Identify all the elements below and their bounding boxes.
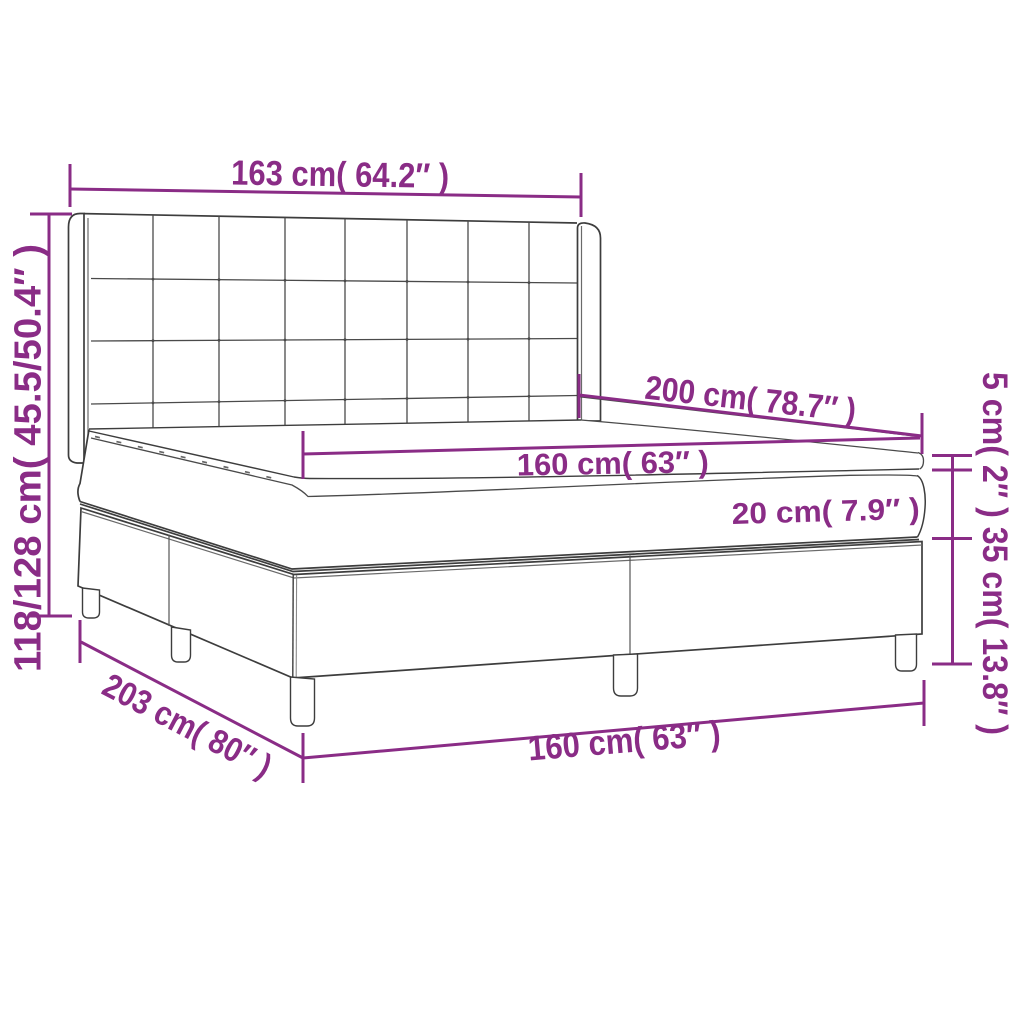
svg-text:5 cm( 2″ ) 35 cm( 13.8″ ): 5 cm( 2″ ) 35 cm( 13.8″ ) — [975, 372, 1014, 735]
svg-text:160 cm( 63″ ): 160 cm( 63″ ) — [517, 444, 710, 482]
svg-text:20 cm( 7.9″ ): 20 cm( 7.9″ ) — [731, 493, 920, 531]
svg-text:163 cm( 64.2″ ): 163 cm( 64.2″ ) — [231, 154, 450, 196]
svg-text:118/128 cm( 45.5/50.4″ ): 118/128 cm( 45.5/50.4″ ) — [8, 244, 50, 672]
